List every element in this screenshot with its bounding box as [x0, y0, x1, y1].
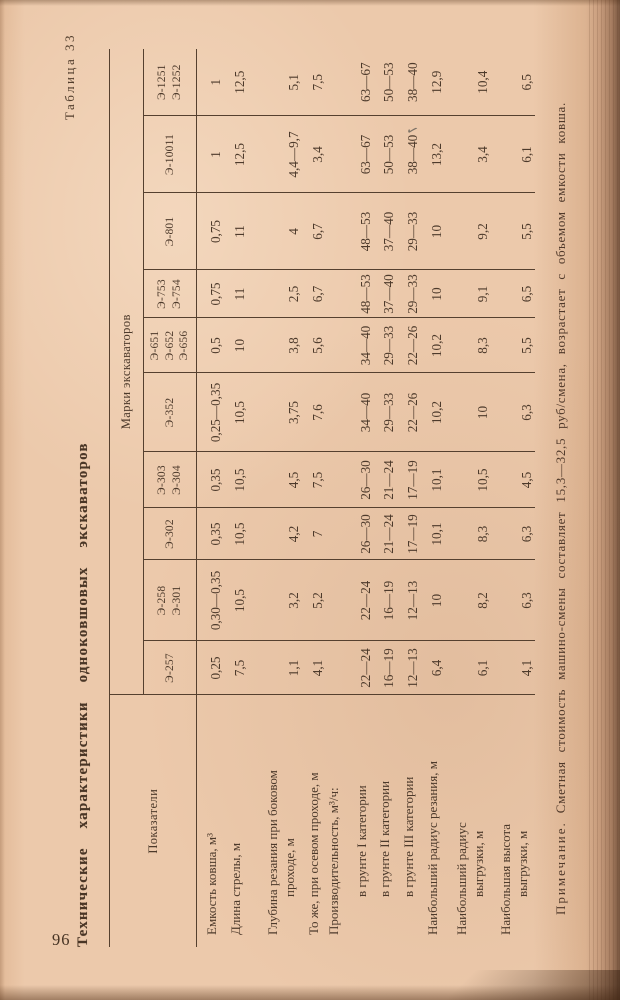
excavator-specs-table: Показатели Марки экскаваторов Э-257Э-258… [109, 49, 535, 947]
table-cell: 10,4 [445, 49, 491, 116]
table-cell: 63—67 [346, 116, 374, 193]
table-cell: 0,25 [197, 641, 224, 695]
footnote-text: Сметная стоимость машино-смены составляе… [553, 102, 568, 813]
table-cell: 10 [421, 270, 445, 318]
table-cell: 29—33 [374, 318, 397, 373]
table-row: Наибольший радиус резания, м6,41010,110,… [421, 49, 445, 947]
table-cell: 10,5 [224, 508, 248, 560]
table-cell: 0,35 [197, 452, 224, 508]
table-cell [326, 116, 346, 193]
column-header: Э-257 [144, 641, 197, 695]
table-cell: 5,5 [491, 318, 535, 373]
table-row: Глубина резания при боковом проходе, м1,… [248, 49, 302, 947]
table-cell: 10 [421, 560, 445, 641]
column-header: Э-352 [144, 373, 197, 452]
page-number: 96 [52, 930, 71, 950]
table-cell: 7,5 [302, 452, 326, 508]
table-cell: 22—24 [346, 560, 374, 641]
table-cell: 34—40 [346, 373, 374, 452]
table-cell: 21—24 [374, 508, 397, 560]
table-cell: 11 [224, 270, 248, 318]
column-header: Э-1251 Э-1252 [144, 49, 197, 116]
table-cell: 50—53 [374, 49, 397, 116]
table-cell: 7,5 [302, 49, 326, 116]
table-cell [326, 270, 346, 318]
row-label: Производительность, м³/ч: [326, 695, 346, 947]
table-cell [326, 641, 346, 695]
table-row: Емкость ковша, м³0,250,30—0,350,350,350,… [197, 49, 224, 947]
table-cell: 26—30 [346, 452, 374, 508]
table-row: в грунте II категории16—1916—1921—2421—2… [374, 49, 397, 947]
table-cell: 10,5 [445, 452, 491, 508]
table-cell: 1 [197, 116, 224, 193]
table-cell: 17—19 [397, 508, 421, 560]
row-label: в грунте II категории [374, 695, 397, 947]
table-cell: 29—33 [397, 270, 421, 318]
table-cell: 10,5 [224, 560, 248, 641]
table-cell [326, 49, 346, 116]
table-cell: 50—53 [374, 116, 397, 193]
table-number: Таблица 33 [62, 33, 78, 120]
table-cell: 8,2 [445, 560, 491, 641]
row-label: Глубина резания при боковом проходе, м [248, 695, 302, 947]
table-cell: 3,75 [248, 373, 302, 452]
row-label: Наибольший радиус резания, м [421, 695, 445, 947]
table-cell: 6,3 [491, 508, 535, 560]
table-cell: 6,3 [491, 560, 535, 641]
page-edge-shadow-left [0, 0, 5, 1000]
table-cell: 0,5 [197, 318, 224, 373]
table-cell: 1 [197, 49, 224, 116]
table-cell: 10,1 [421, 452, 445, 508]
table-cell: 6,7 [302, 193, 326, 270]
table-cell: 10,2 [421, 318, 445, 373]
column-header: Э-753 Э-754 [144, 270, 197, 318]
row-label: То же, при осевом проходе, м [302, 695, 326, 947]
table-cell: 10,2 [421, 373, 445, 452]
table-cell: 12,5 [224, 116, 248, 193]
table-cell: 10 [421, 193, 445, 270]
table-cell: 10 [445, 373, 491, 452]
row-label: Наибольшая высота выгрузки, м [491, 695, 535, 947]
table-cell: 7,5 [224, 641, 248, 695]
table-cell: 4,4—9,7 [248, 116, 302, 193]
table-cell: 7 [302, 508, 326, 560]
table-cell: 37—40 [374, 193, 397, 270]
table-cell: 16—19 [374, 641, 397, 695]
row-label: Емкость ковша, м³ [197, 695, 224, 947]
column-header: Э-303 Э-304 [144, 452, 197, 508]
table-cell: 29—33 [374, 373, 397, 452]
column-header: Э-10011 [144, 116, 197, 193]
table-cell: 11 [224, 193, 248, 270]
rotated-table-layout: Таблица 33 Технические характеристики од… [35, 25, 585, 965]
table-cell: 6,5 [491, 270, 535, 318]
table-cell: 8,3 [445, 508, 491, 560]
table-cell: 48—53 [346, 270, 374, 318]
table-cell: 3,8 [248, 318, 302, 373]
table-cell: 9,1 [445, 270, 491, 318]
table-cell: 26—30 [346, 508, 374, 560]
table-cell: 4 [248, 193, 302, 270]
table-cell: 5,2 [302, 560, 326, 641]
row-label: Длина стрелы, м [224, 695, 248, 947]
table-cell: 22—26 [397, 318, 421, 373]
table-row: в грунте III категории12—1312—1317—1917—… [397, 49, 421, 947]
table-cell: 10,1 [421, 508, 445, 560]
table-cell: 10,5 [224, 452, 248, 508]
table-cell: 29—33 [397, 193, 421, 270]
table-cell: 21—24 [374, 452, 397, 508]
page-edge-shadow-corner [400, 970, 620, 1000]
table-cell: 7,6 [302, 373, 326, 452]
table-cell: 9,2 [445, 193, 491, 270]
table-cell: 6,5 [491, 49, 535, 116]
table-row: Длина стрелы, м7,510,510,510,510,5101111… [224, 49, 248, 947]
page-edge-shadow-bottom [0, 985, 620, 1000]
row-label: в грунте I категории [346, 695, 374, 947]
table-cell: 16—19 [374, 560, 397, 641]
group-header: Марки экскаваторов [110, 49, 144, 695]
table-cell: 0,75 [197, 270, 224, 318]
table-cell: 3,2 [248, 560, 302, 641]
column-header: Э-258 Э-301 [144, 560, 197, 641]
table-row: в грунте I категории22—2422—2426—3026—30… [346, 49, 374, 947]
table-cell [326, 373, 346, 452]
footnote-label: Примечание. [553, 821, 568, 915]
row-label: Наибольший радиус выгрузки, м [445, 695, 491, 947]
footnote: Примечание.Сметная стоимость машино-смен… [553, 37, 569, 915]
row-label: в грунте III категории [397, 695, 421, 947]
table-cell: 0,30—0,35 [197, 560, 224, 641]
table-cell: 34—40 [346, 318, 374, 373]
table-cell: 4,1 [302, 641, 326, 695]
page-title: Технические характеристики одноковшовых … [75, 417, 92, 947]
table-cell: 63—67 [346, 49, 374, 116]
table-cell: 4,5 [491, 452, 535, 508]
table-cell: 3,4 [445, 116, 491, 193]
column-header: Э-651 Э-652 Э-656 [144, 318, 197, 373]
group-header-row: Показатели Марки экскаваторов [110, 49, 144, 947]
table-cell: 6,1 [491, 116, 535, 193]
column-header: Э-801 [144, 193, 197, 270]
table-cell: 12—13 [397, 641, 421, 695]
table-cell: 5,5 [491, 193, 535, 270]
table-cell: 12,9 [421, 49, 445, 116]
table-cell: 3,4 [302, 116, 326, 193]
table-row: Наибольший радиус выгрузки, м6,18,28,310… [445, 49, 491, 947]
table-cell: 5,1 [248, 49, 302, 116]
table-cell: 6,1 [445, 641, 491, 695]
table-cell [326, 318, 346, 373]
table-cell: 4,5 [248, 452, 302, 508]
page-edge-shadow-right [586, 0, 620, 1000]
table-cell: 0,25—0,35 [197, 373, 224, 452]
scanned-book-page: { "page": { "number": "96", "table_label… [0, 0, 620, 1000]
table-cell [326, 560, 346, 641]
table-cell: 0,75 [197, 193, 224, 270]
table-cell: 6,4 [421, 641, 445, 695]
table-cell: 4,1 [491, 641, 535, 695]
table-cell: 17—19 [397, 452, 421, 508]
table-cell: 10 [224, 318, 248, 373]
table-cell: 2,5 [248, 270, 302, 318]
table-cell: 13,2 [421, 116, 445, 193]
table-cell: 0,35 [197, 508, 224, 560]
column-header: Э-302 [144, 508, 197, 560]
table-cell: 37—40 [374, 270, 397, 318]
page-edge-shadow-top [0, 0, 620, 6]
table-cell: 10,5 [224, 373, 248, 452]
table-cell: 8,3 [445, 318, 491, 373]
table-cell: 12—13 [397, 560, 421, 641]
table-cell: 48—53 [346, 193, 374, 270]
table-cell: 6,7 [302, 270, 326, 318]
table-row: Производительность, м³/ч: [326, 49, 346, 947]
table-cell [326, 193, 346, 270]
table-cell: 6,3 [491, 373, 535, 452]
table-row: Наибольшая высота выгрузки, м4,16,36,34,… [491, 49, 535, 947]
table-cell: 4,2 [248, 508, 302, 560]
table-row: То же, при осевом проходе, м4,15,277,57,… [302, 49, 326, 947]
table-cell [326, 452, 346, 508]
table-cell: 22—24 [346, 641, 374, 695]
corner-header: Показатели [110, 695, 197, 947]
table-cell: 12,5 [224, 49, 248, 116]
table-cell: 22—26 [397, 373, 421, 452]
table-cell: 5,6 [302, 318, 326, 373]
table-cell: 38—40 [397, 49, 421, 116]
table-cell [326, 508, 346, 560]
table-cell: 1,1 [248, 641, 302, 695]
